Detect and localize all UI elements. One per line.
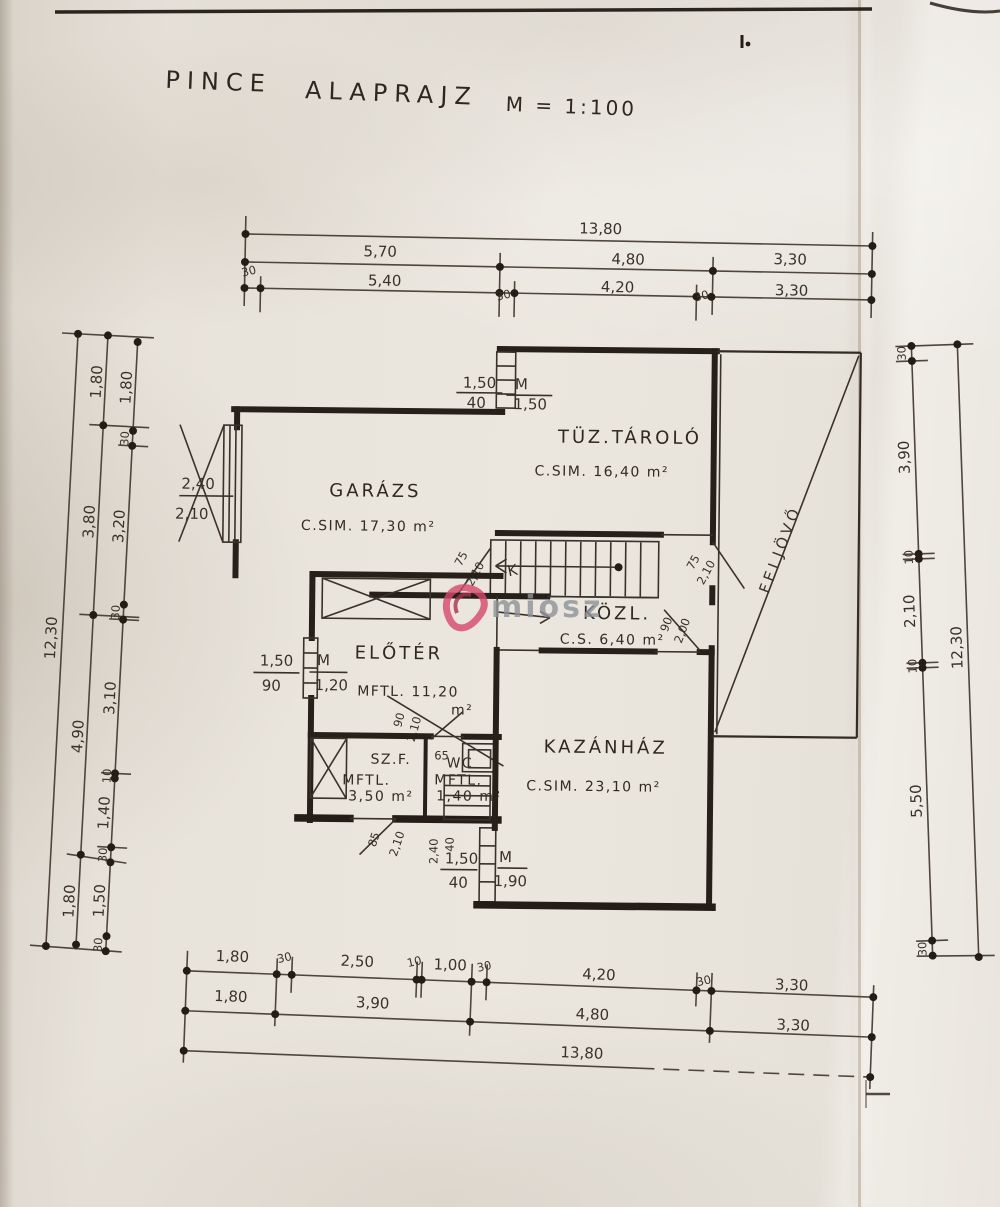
dim-left: 3,20 bbox=[109, 509, 129, 543]
dim-top: 5,40 bbox=[368, 271, 402, 290]
room-szf-line2: 3,50 m² bbox=[348, 788, 414, 805]
dim-bottom-total: 13,80 bbox=[560, 1043, 604, 1063]
floorplan-walls: 2,40 2,10 GARÁZS C.SIM. 17,30 m² 1,50 40 bbox=[171, 346, 861, 909]
dim-left: 30 bbox=[117, 431, 132, 446]
dim-bottom: 1,80 bbox=[215, 947, 249, 966]
title-pince: PINCE bbox=[165, 66, 272, 98]
door-width: 90 bbox=[657, 615, 675, 634]
watermark-text: miosz bbox=[491, 590, 603, 625]
dim-left: 1,40 bbox=[94, 796, 114, 830]
window-m: M bbox=[499, 848, 512, 866]
room-wc-line2: 1,40 m² bbox=[436, 788, 502, 805]
north-window: 1,50 40 M 1,50 bbox=[456, 352, 553, 414]
room-kozl-area: C.S. 6,40 m² bbox=[560, 632, 665, 649]
dim-top-total: 13,80 bbox=[579, 219, 622, 238]
chimney-box bbox=[310, 738, 347, 798]
window-sill: 90 bbox=[262, 677, 281, 695]
room-eloter: ELŐTÉR bbox=[355, 641, 444, 664]
title-block: PINCE ALAPRAJZ M = 1:100 bbox=[165, 66, 638, 121]
stairs: K bbox=[490, 540, 659, 598]
miosz-logo-icon bbox=[446, 588, 484, 628]
ramp-label: FELJÖVŐ bbox=[753, 502, 804, 596]
dim-left: 1,50 bbox=[90, 884, 110, 918]
dim-bottom: 4,80 bbox=[575, 1005, 609, 1024]
dim-bottom: 3,90 bbox=[356, 993, 390, 1012]
window-width: 1,50 bbox=[445, 849, 479, 867]
dim-top: 3,30 bbox=[773, 250, 807, 269]
dim-top: 4,80 bbox=[611, 250, 645, 269]
dim-left: 30 bbox=[91, 937, 106, 952]
right-dimension-chain: 30 3,90 10 2,10 10 5,50 30 12,30 bbox=[891, 340, 995, 963]
stair-mark: K bbox=[506, 560, 520, 580]
dim-bottom: 2,50 bbox=[340, 952, 374, 971]
room-tuztarolo-area: C.SIM. 16,40 m² bbox=[534, 463, 669, 480]
dim-left-total: 12,30 bbox=[41, 616, 61, 660]
door-width: 85 bbox=[365, 830, 383, 848]
dim-left: 1,80 bbox=[59, 884, 79, 918]
dim-right-total: 12,30 bbox=[947, 626, 966, 670]
dim-left: 30 bbox=[108, 605, 123, 620]
dim-bottom: 3,30 bbox=[776, 1015, 810, 1034]
niche-width: 2,40 bbox=[426, 838, 440, 864]
dim-top: 4,20 bbox=[601, 278, 635, 297]
dim-right: 5,50 bbox=[907, 784, 926, 818]
bottom-dimension-chain: 1,80 30 2,50 10 1,00 30 4,20 30 3,30 1,8… bbox=[179, 944, 878, 1089]
door-width: 90 bbox=[390, 711, 407, 729]
room-garazs-area: C.SIM. 17,30 m² bbox=[301, 518, 436, 535]
dim-left: 10 bbox=[100, 768, 115, 783]
room-kazanhaz: KAZÁNHÁZ bbox=[544, 735, 668, 758]
upper-exit-door: 75 2,10 bbox=[683, 542, 745, 589]
floorplan-drawing: PINCE ALAPRAJZ M = 1:100 13,80 5,70 bbox=[0, 0, 1000, 1207]
room-szf: SZ.F. bbox=[370, 752, 411, 768]
window-width: 1,50 bbox=[463, 374, 497, 392]
dim-top: 3,30 bbox=[775, 281, 809, 300]
dim-bottom: 3,30 bbox=[775, 975, 809, 994]
top-dimension-chain: 13,80 5,70 4,80 3,30 30 5,40 30 4,20 30 … bbox=[239, 213, 877, 324]
dim-top: 30 bbox=[240, 263, 258, 280]
dim-right: 10 bbox=[901, 550, 916, 565]
dim-left: 1,80 bbox=[87, 365, 107, 399]
dim-bottom: 30 bbox=[695, 972, 712, 989]
dim-bottom: 4,20 bbox=[582, 965, 616, 984]
title-alaprajz: ALAPRAJZ bbox=[305, 76, 479, 111]
window-height: 1,20 bbox=[315, 676, 349, 694]
dim-top: 30 bbox=[495, 287, 513, 304]
garage-door: 2,40 2,10 bbox=[175, 425, 242, 543]
garage-door-width: 2,40 bbox=[181, 475, 215, 493]
dim-right: 30 bbox=[894, 346, 909, 361]
window-m: M bbox=[317, 651, 330, 669]
window-m: M bbox=[515, 375, 528, 393]
flue-box bbox=[322, 578, 430, 619]
dim-left: 4,90 bbox=[68, 719, 88, 753]
dim-bottom: 1,00 bbox=[433, 955, 467, 974]
window-height: 1,90 bbox=[493, 872, 527, 890]
garage-door-height: 2,10 bbox=[175, 505, 209, 523]
scanned-floorplan-page: PINCE ALAPRAJZ M = 1:100 13,80 5,70 bbox=[0, 0, 1000, 1207]
dim-bottom: 1,80 bbox=[214, 987, 248, 1006]
dim-bottom: 10 bbox=[406, 953, 423, 970]
exterior-ramp: FELJÖVŐ bbox=[711, 351, 861, 738]
dim-right: 10 bbox=[905, 659, 920, 674]
room-tuztarolo: TÜZ.TÁROLÓ bbox=[557, 426, 702, 450]
room-kazanhaz-area: C.SIM. 23,10 m² bbox=[526, 778, 661, 795]
window-width: 1,50 bbox=[260, 651, 294, 669]
west-window: 1,50 90 M 1,20 bbox=[253, 637, 348, 698]
room-garazs: GARÁZS bbox=[329, 479, 421, 502]
dim-left: 30 bbox=[95, 847, 110, 862]
dim-left: 3,80 bbox=[79, 505, 99, 539]
window-sill: 40 bbox=[449, 873, 468, 891]
dim-bottom: 30 bbox=[475, 958, 492, 975]
room-eloter-area: MFTL. 11,20 bbox=[357, 684, 459, 701]
dim-left: 1,80 bbox=[116, 370, 136, 404]
dim-right: 30 bbox=[915, 941, 930, 956]
dim-bottom: 30 bbox=[276, 949, 293, 966]
dim-top: 30 bbox=[693, 287, 711, 304]
room-eloter-unit: m² bbox=[451, 702, 473, 718]
door-height: 2,10 bbox=[386, 829, 407, 858]
door-width: 75 bbox=[451, 549, 470, 569]
lower-exit-door: 85 2,10 bbox=[360, 819, 408, 859]
dim-right: 2,10 bbox=[900, 594, 919, 628]
room-szf-line1: MFTL. bbox=[342, 772, 390, 789]
dim-top: 5,70 bbox=[363, 242, 397, 261]
title-scale: M = 1:100 bbox=[505, 92, 637, 121]
dim-left: 3,10 bbox=[100, 681, 120, 715]
window-height: 1,50 bbox=[513, 395, 547, 413]
watermark: miosz bbox=[446, 588, 603, 628]
left-dimension-chain: 12,30 1,80 3,80 4,90 1,80 1,80 30 3,20 3… bbox=[26, 329, 154, 956]
dim-right: 3,90 bbox=[895, 440, 914, 474]
window-sill: 40 bbox=[467, 394, 486, 412]
